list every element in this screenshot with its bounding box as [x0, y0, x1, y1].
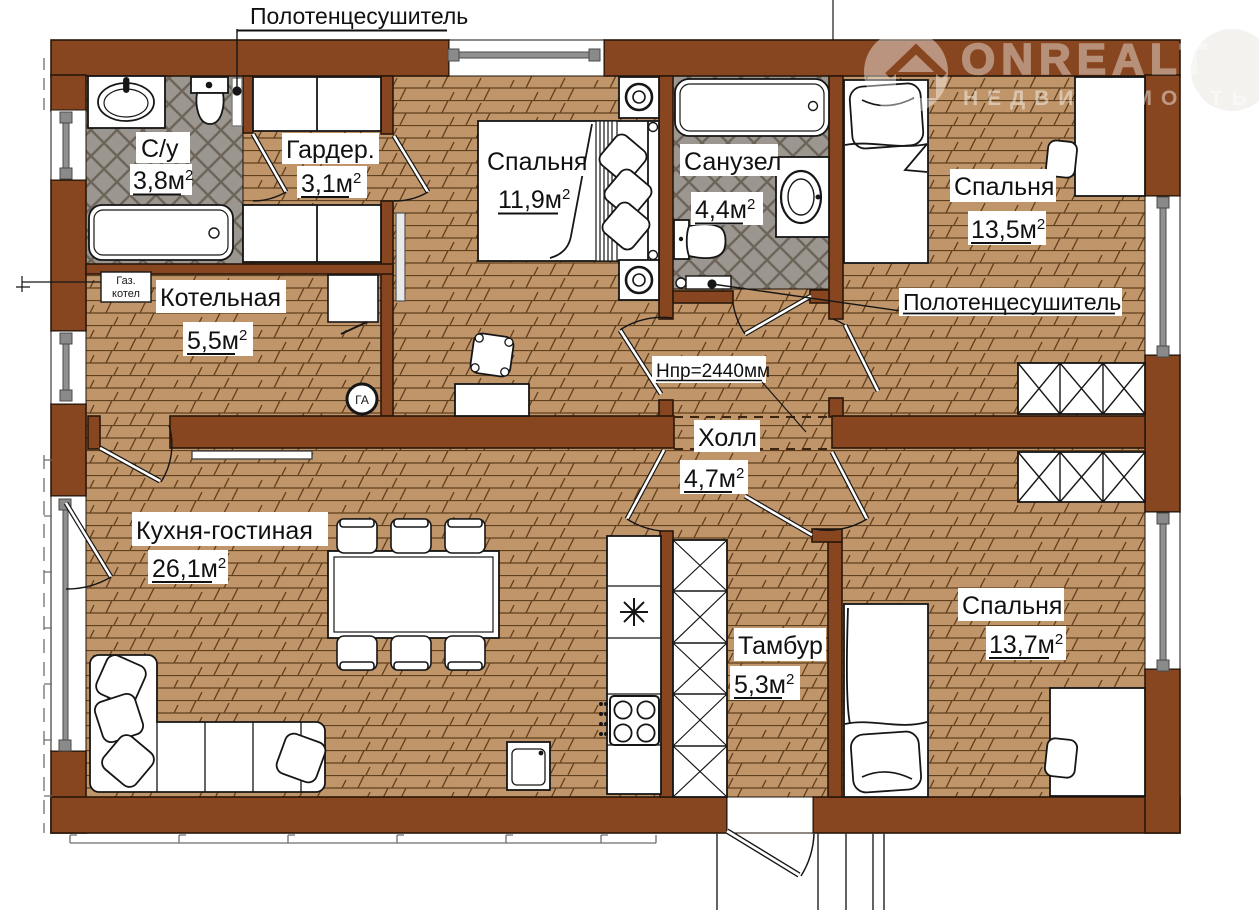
svg-text:Газ.: Газ.	[116, 275, 135, 287]
svg-text:5,3м2: 5,3м2	[734, 671, 794, 699]
svg-text:13,5м2: 13,5м2	[971, 216, 1045, 244]
svg-text:Тамбур: Тамбур	[738, 632, 823, 660]
svg-text:11,9м2: 11,9м2	[498, 186, 570, 214]
svg-text:4,4м2: 4,4м2	[695, 196, 755, 224]
svg-text:5,5м2: 5,5м2	[187, 327, 247, 355]
svg-text:котел: котел	[112, 288, 140, 300]
svg-text:Котельная: Котельная	[160, 284, 281, 312]
svg-text:Холл: Холл	[698, 424, 757, 452]
svg-text:Спальня: Спальня	[962, 592, 1062, 620]
svg-text:Спальня: Спальня	[487, 148, 587, 176]
svg-text:4,7м2: 4,7м2	[684, 465, 744, 493]
svg-text:С/у: С/у	[141, 135, 179, 163]
svg-text:26,1м2: 26,1м2	[152, 555, 226, 583]
svg-text:Полотенцесушитель: Полотенцесушитель	[903, 289, 1121, 315]
svg-text:13,7м2: 13,7м2	[989, 631, 1063, 659]
svg-text:Кухня-гостиная: Кухня-гостиная	[136, 517, 313, 545]
svg-text:НЕДВИЖИМОСТЬ: НЕДВИЖИМОСТЬ	[963, 87, 1256, 110]
svg-text:3,1м2: 3,1м2	[301, 170, 361, 198]
svg-text:3,8м2: 3,8м2	[133, 167, 193, 195]
svg-text:Санузел: Санузел	[684, 148, 781, 176]
svg-text:Полотенцесушитель: Полотенцесушитель	[250, 3, 468, 29]
svg-text:Нпр=2440мм: Нпр=2440мм	[656, 361, 770, 382]
svg-text:Гардер.: Гардер.	[286, 136, 375, 164]
svg-text:Спальня: Спальня	[954, 173, 1054, 201]
svg-text:ONREALT: ONREALT	[961, 35, 1212, 84]
svg-text:ГА: ГА	[355, 393, 369, 407]
